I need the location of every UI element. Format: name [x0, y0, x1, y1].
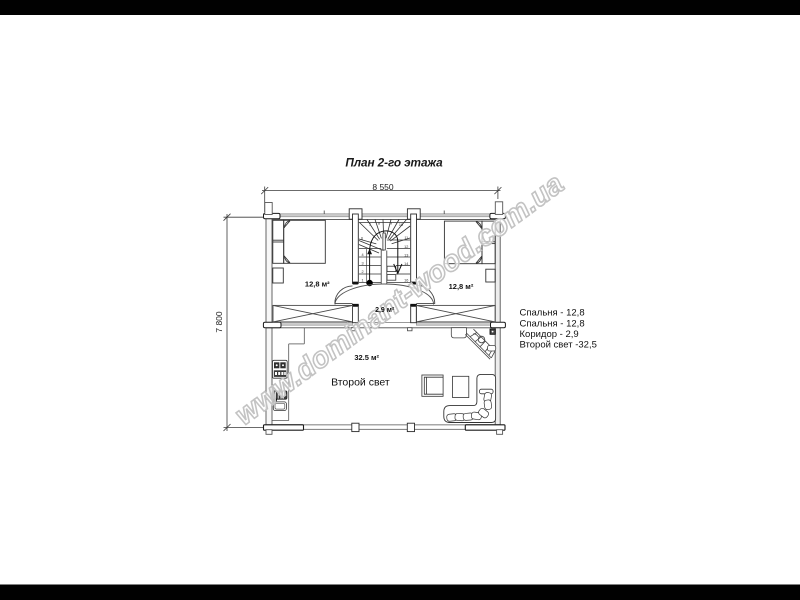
svg-text:8 550: 8 550	[372, 182, 394, 192]
svg-text:Спальня - 12,8: Спальня - 12,8	[520, 318, 585, 329]
svg-text:План 2-го этажа: План 2-го этажа	[345, 156, 443, 170]
svg-text:2: 2	[361, 270, 363, 274]
svg-text:11: 11	[404, 236, 408, 240]
svg-text:6: 6	[361, 237, 363, 241]
svg-text:9: 9	[390, 222, 392, 226]
svg-text:Спальня - 12,8: Спальня - 12,8	[520, 308, 585, 319]
svg-text:Второй свет -32,5: Второй свет -32,5	[520, 339, 597, 350]
svg-text:12: 12	[404, 245, 408, 249]
svg-text:7: 7	[369, 223, 371, 227]
svg-text:2,9 м²: 2,9 м²	[375, 307, 395, 314]
svg-text:Второй свет: Второй свет	[331, 376, 390, 388]
svg-text:1: 1	[361, 279, 363, 283]
svg-text:4: 4	[361, 253, 363, 257]
svg-text:12,8 м²: 12,8 м²	[449, 282, 474, 291]
svg-text:8: 8	[378, 222, 380, 226]
svg-text:10: 10	[399, 223, 403, 227]
svg-text:12,8 м²: 12,8 м²	[305, 279, 330, 288]
svg-text:3: 3	[361, 262, 363, 266]
svg-text:32.5 м²: 32.5 м²	[354, 353, 379, 362]
svg-text:Коридор - 2,9: Коридор - 2,9	[520, 329, 579, 340]
svg-text:13: 13	[404, 254, 408, 258]
svg-text:14: 14	[404, 262, 408, 266]
svg-text:7 800: 7 800	[214, 311, 224, 333]
